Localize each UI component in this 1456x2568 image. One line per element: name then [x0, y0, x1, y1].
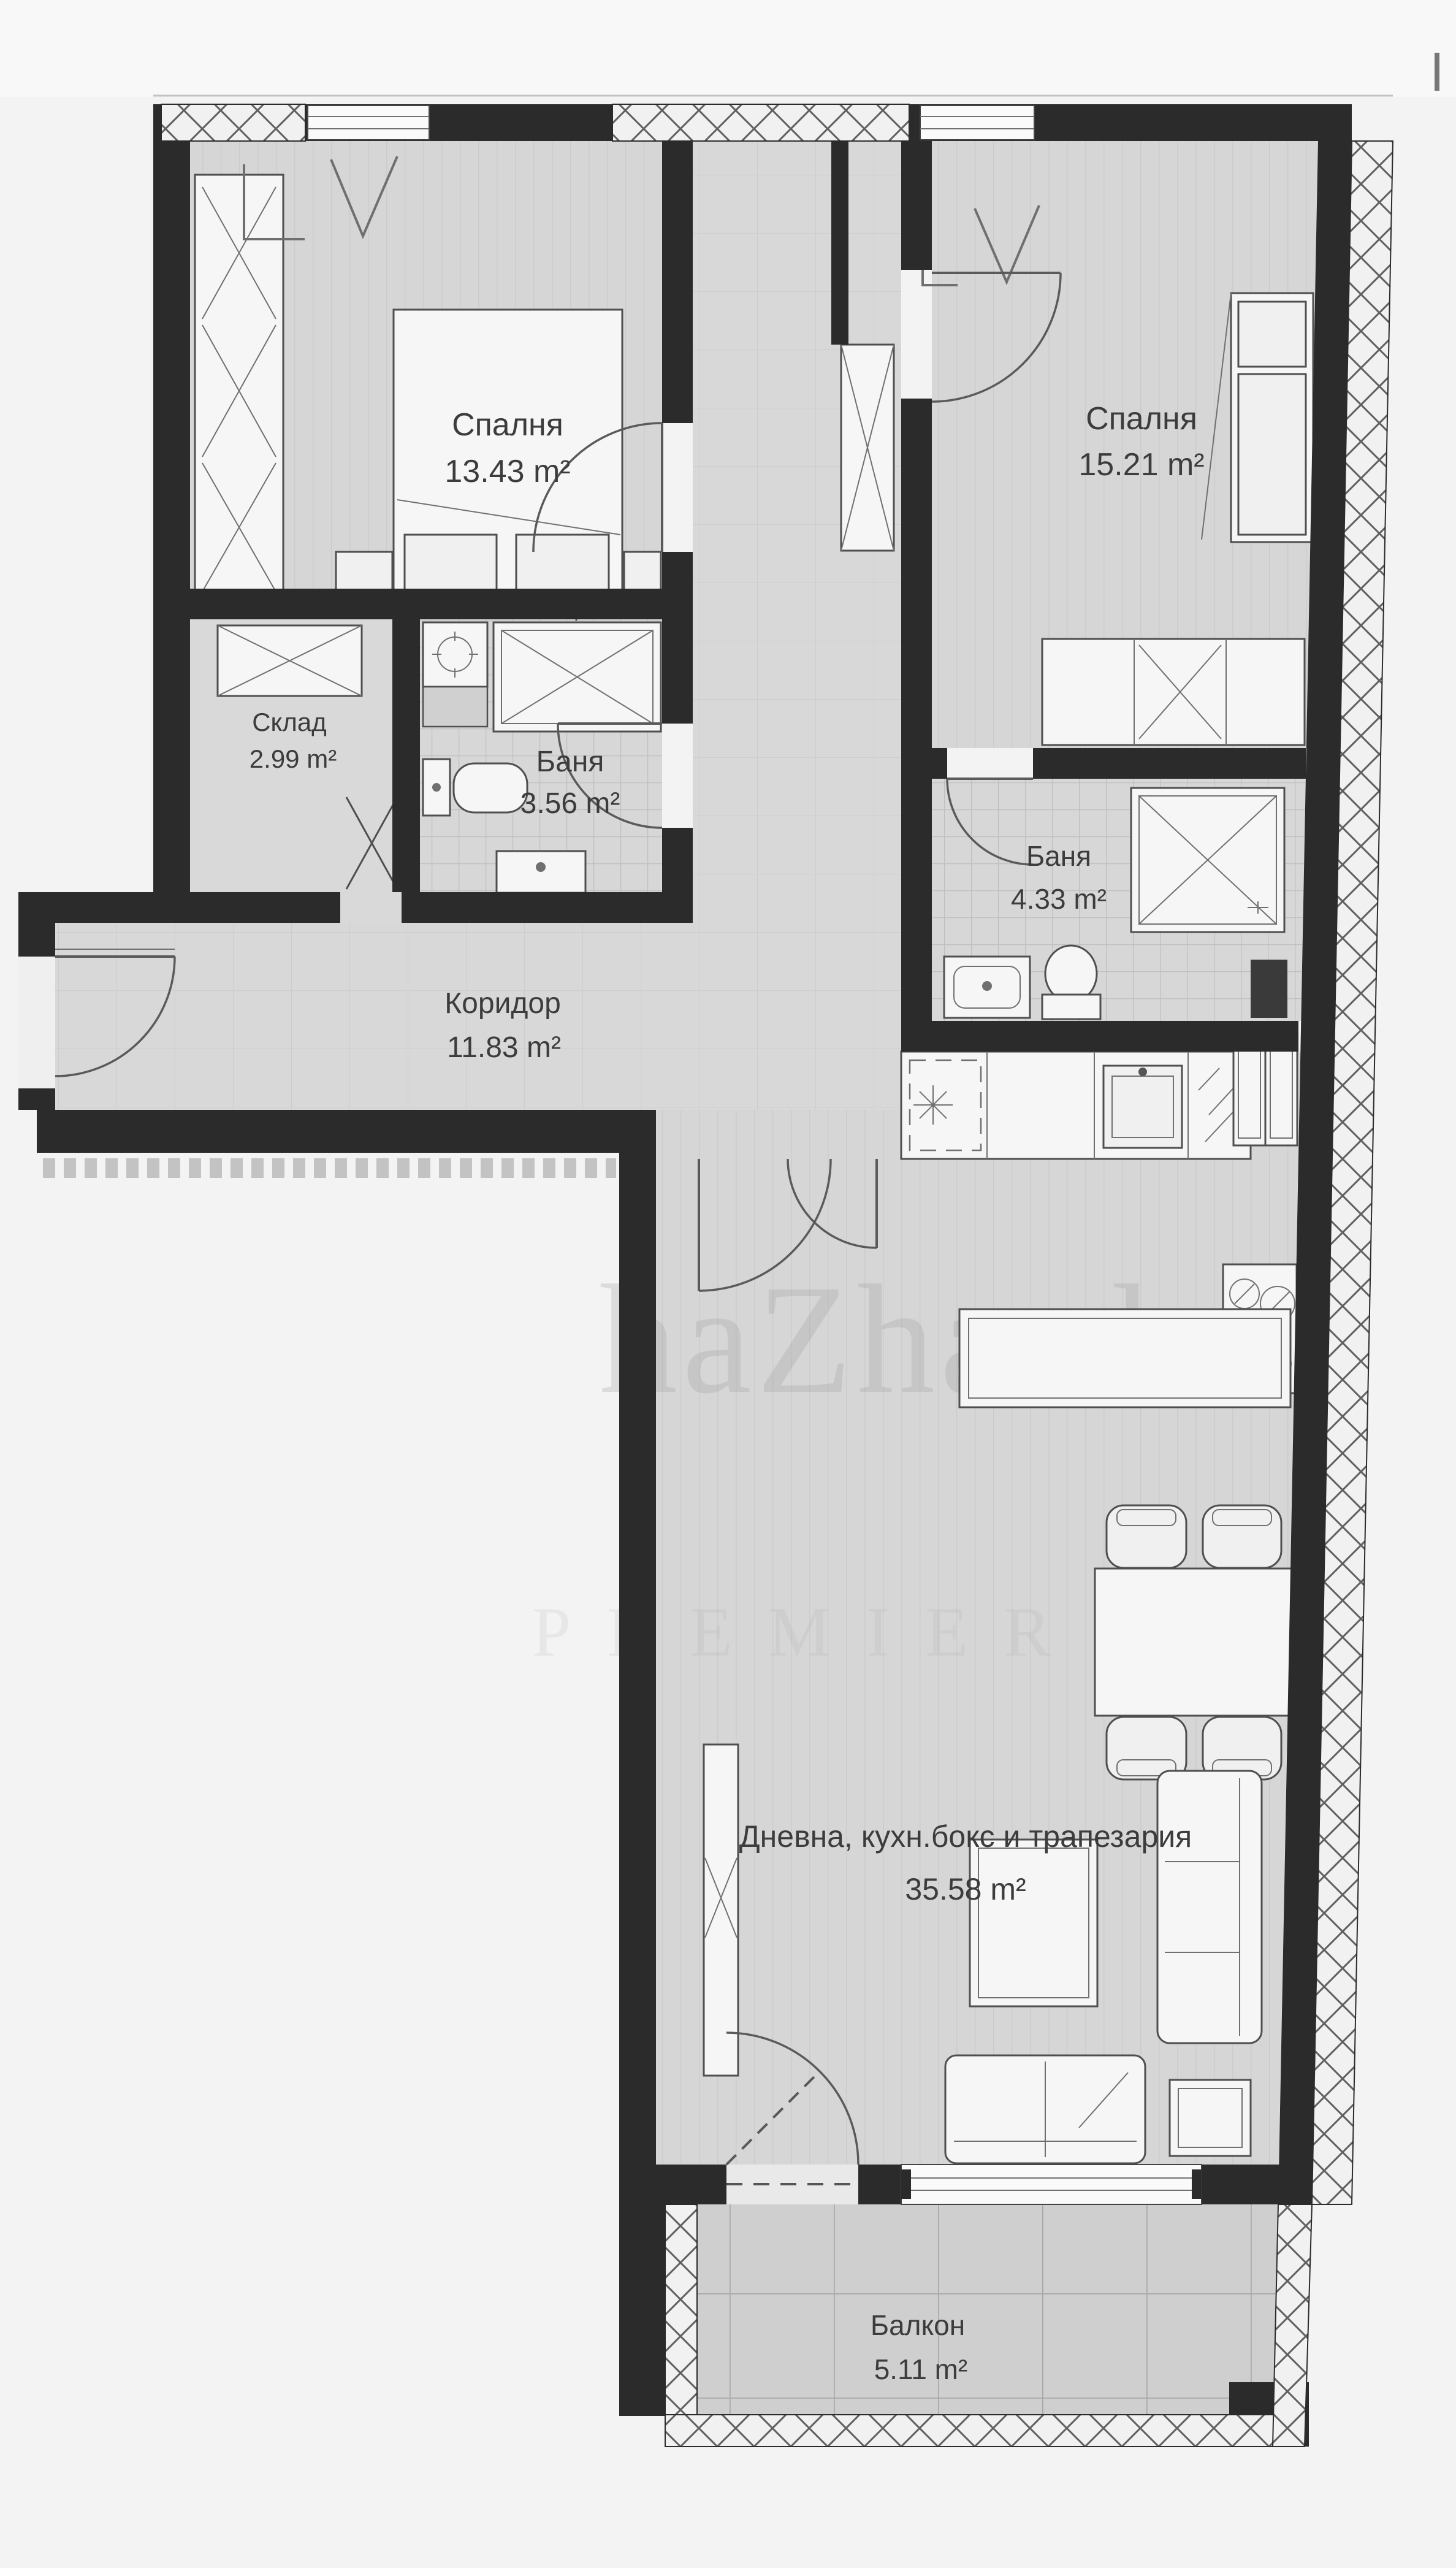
sink-faucet	[982, 981, 992, 991]
bedroom2-label: Спалня	[1086, 401, 1197, 437]
bedroom1-window	[308, 105, 429, 140]
toilet-cistern	[1042, 995, 1100, 1019]
storage-area: 2.99 m²	[250, 744, 337, 773]
living-area: 35.58 m²	[905, 1872, 1026, 1906]
corridor-bottom-wall	[37, 1110, 656, 1153]
storage-bath-bottom-wall	[190, 892, 693, 923]
bedroom2-area: 15.21 m²	[1078, 447, 1204, 483]
corridor-label: Коридор	[444, 987, 561, 1020]
entrance-wall-b	[18, 1088, 55, 1110]
hall-bedroom2-wall-b	[901, 399, 932, 748]
bath2-top-wall-a	[901, 748, 947, 779]
bedroom1-hall-wall-a	[662, 141, 693, 423]
balcony-floor	[697, 2204, 1278, 2415]
entrance-wall-a	[18, 923, 55, 957]
bath2-label: Баня	[1026, 840, 1091, 872]
bedroom1-area: 13.43 m²	[444, 454, 570, 489]
bed-mattress	[1238, 374, 1306, 535]
page-top-margin	[0, 0, 1456, 97]
bath2-bottom-wall	[901, 1021, 1298, 1052]
tv-cabinet	[704, 1744, 738, 2076]
bedroom2-window	[920, 105, 1034, 140]
bath2-left-wall	[901, 779, 932, 1052]
watermark-secondary: PREMIER	[532, 1593, 1086, 1671]
bath-counter	[423, 687, 487, 727]
storage-bath-wall	[392, 619, 420, 892]
coffee-table-icon	[970, 1840, 1097, 2006]
duct-stub-wall	[831, 141, 848, 345]
bed-pillow	[1238, 302, 1306, 367]
bath2-area: 4.33 m²	[1011, 883, 1107, 915]
toilet-button	[432, 783, 441, 792]
living-window	[901, 2165, 1202, 2204]
bath1-hall-wall-b	[662, 828, 693, 892]
storage-door-gap	[340, 892, 402, 923]
bath1-hall-wall-a	[662, 619, 693, 724]
bath2-top-wall-b	[1033, 748, 1306, 779]
kitchen-sink-icon	[1103, 1066, 1182, 1148]
entrance-door-gap	[18, 957, 55, 1088]
hall-bedroom2-wall-a	[901, 141, 932, 270]
sink-faucet	[1138, 1068, 1147, 1076]
toilet-icon	[454, 763, 527, 812]
bedroom1-hall-wall-b	[662, 552, 693, 589]
balcony-door-threshold	[726, 2165, 858, 2204]
parapet-hatch	[612, 104, 909, 141]
bedroom1-label: Спалня	[452, 407, 563, 443]
bath1-label: Баня	[536, 746, 604, 778]
boiler-icon	[1251, 960, 1287, 1018]
bedroom1-bottom-wall	[190, 589, 693, 619]
sink-icon	[497, 851, 585, 893]
balcony-railing	[665, 2204, 697, 2447]
balcony-area: 5.11 m²	[874, 2353, 968, 2385]
balcony-left-wall	[619, 2204, 665, 2416]
chair-icon	[1107, 1505, 1186, 1568]
floor-plan-page: haZhard PREMIER	[0, 0, 1456, 2568]
living-label: Дневна, кухн.бокс и трапезария	[739, 1819, 1192, 1854]
balcony-railing	[1273, 2204, 1312, 2447]
corridor-top-wall	[18, 892, 190, 923]
bed-pillow	[516, 535, 609, 591]
kitchen-island	[959, 1309, 1290, 1407]
sofa-icon	[1157, 1771, 1262, 2043]
chair-icon	[1203, 1505, 1281, 1568]
floor-plan-drawing: haZhard PREMIER	[0, 0, 1456, 2568]
kitchen-counter	[901, 1052, 1251, 1159]
page-mark	[1435, 53, 1439, 91]
corridor-area: 11.83 m²	[447, 1031, 561, 1064]
parapet-hatch	[161, 104, 305, 141]
bed-pillow	[405, 535, 497, 591]
sink-faucet	[536, 862, 546, 872]
dining-table-icon	[1095, 1569, 1294, 1716]
hall-shaft	[841, 345, 894, 551]
toilet-icon	[1045, 946, 1097, 1002]
left-wall	[153, 104, 190, 892]
top-right-corner	[1315, 104, 1352, 141]
storage-label: Склад	[252, 708, 327, 736]
living-left-wall	[619, 1153, 656, 2204]
balcony-railing	[665, 2415, 1305, 2447]
balcony-label: Балкон	[871, 2309, 965, 2341]
bath1-area: 3.56 m²	[520, 787, 620, 820]
wardrobe-icon	[1042, 639, 1305, 745]
side-table-icon	[1170, 2080, 1251, 2156]
